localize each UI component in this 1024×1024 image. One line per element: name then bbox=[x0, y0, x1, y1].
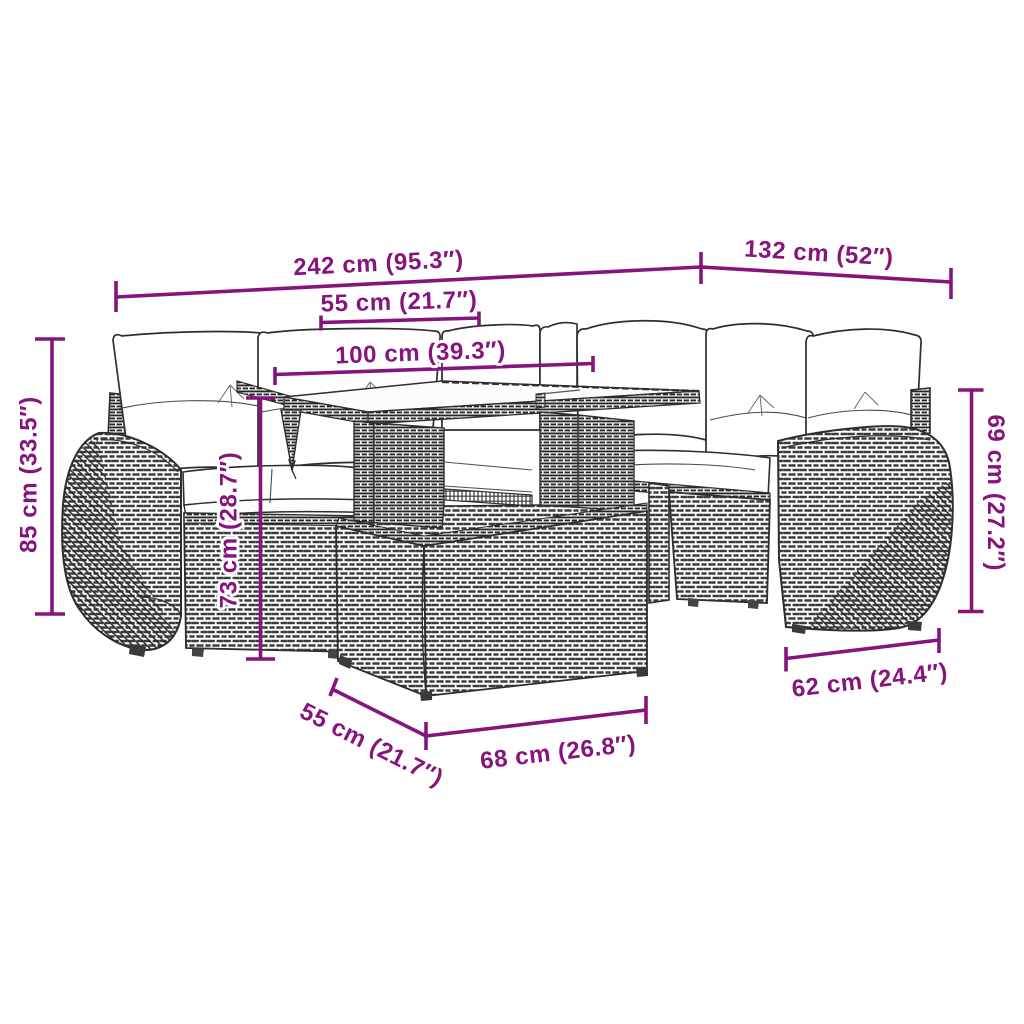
svg-text:55 cm (21.7″): 55 cm (21.7″) bbox=[320, 286, 477, 317]
svg-text:85 cm (33.5″): 85 cm (33.5″) bbox=[16, 396, 43, 553]
svg-text:69 cm (27.2″): 69 cm (27.2″) bbox=[982, 414, 1009, 571]
svg-text:73 cm (28.7″): 73 cm (28.7″) bbox=[215, 452, 242, 609]
